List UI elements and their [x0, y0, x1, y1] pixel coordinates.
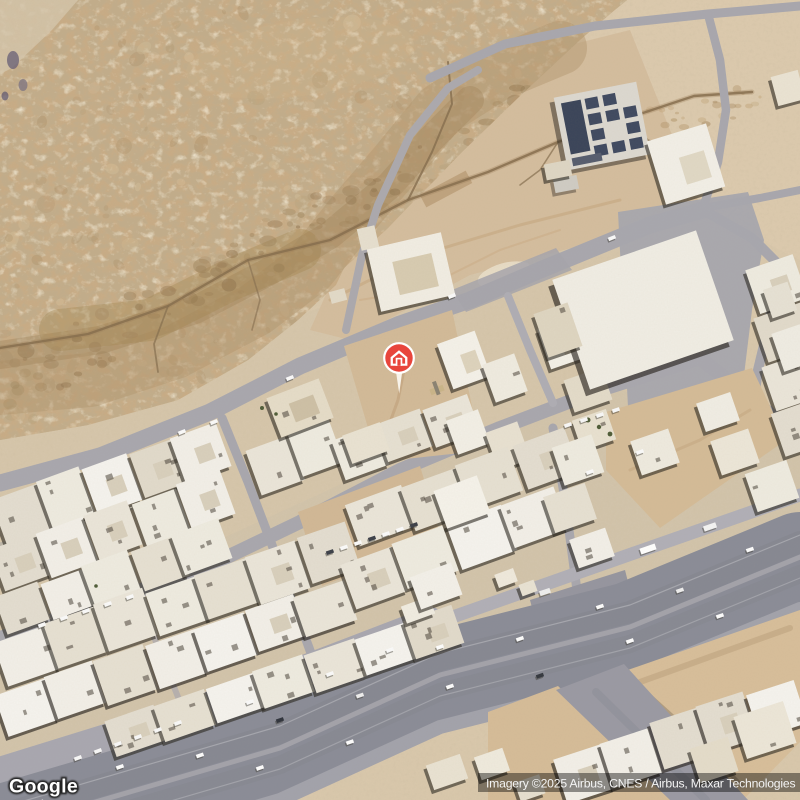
svg-text:Google: Google [9, 776, 78, 798]
svg-text:Imagery ©2025 Airbus, CNES / A: Imagery ©2025 Airbus, CNES / Airbus, Max… [486, 777, 795, 791]
